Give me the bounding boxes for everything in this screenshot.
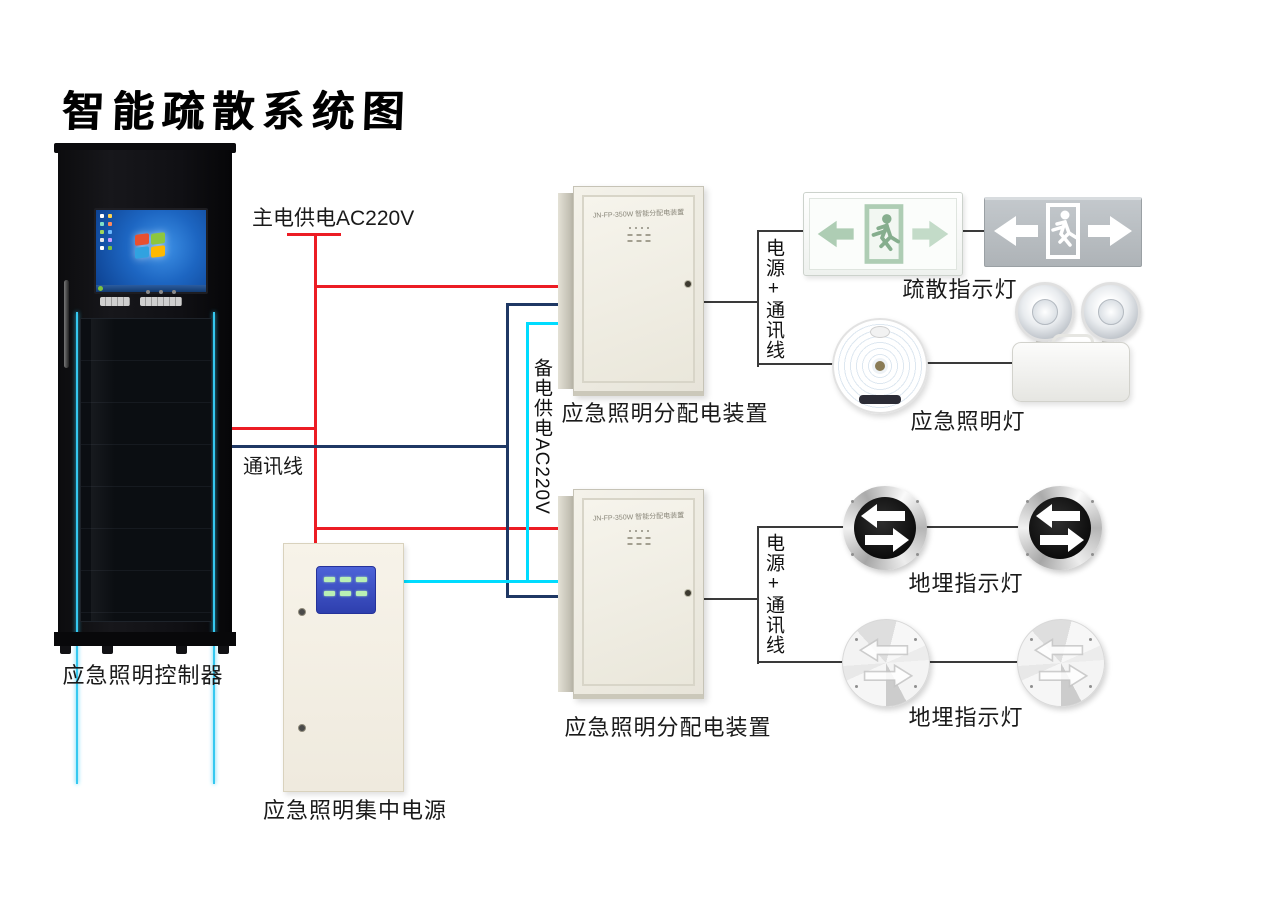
- device-wire: [920, 362, 1014, 364]
- device-wire: [926, 661, 1020, 663]
- device-wire: [757, 526, 847, 528]
- power-comm-label-1: 电源+通讯线: [763, 238, 783, 364]
- power-box-display-panel: [316, 566, 376, 614]
- box-lock-icon: [685, 281, 691, 287]
- ground-lamp-steel: [842, 619, 930, 707]
- lamp-sensor: [870, 326, 890, 338]
- ground-lamp-steel: [1017, 619, 1105, 707]
- exit-sign-lit: [803, 192, 963, 276]
- cabinet-button-panel-right: [140, 297, 182, 306]
- box-front-face: JN-FP-350W 智能分配电装置: [573, 186, 704, 396]
- cabinet-foot: [176, 646, 187, 654]
- main-power-wire: [314, 285, 574, 288]
- cabinet-button-panel-left: [100, 297, 130, 306]
- double-arrow-icon: [1031, 633, 1091, 693]
- central-power-label: 应急照明集中电源: [263, 793, 447, 825]
- page-title: 智能疏散系统图: [61, 78, 413, 139]
- main-power-label: 主电供电AC220V: [252, 202, 414, 232]
- windows-logo-icon: [135, 233, 167, 259]
- device-wire: [757, 661, 845, 663]
- twin-head-emergency-lamp: [1012, 342, 1130, 402]
- box-front-face: JN-FP-350W 智能分配电装置: [573, 489, 704, 699]
- device-wire: [925, 526, 1020, 528]
- right-arrow-icon: [912, 221, 948, 247]
- start-orb-icon: [98, 286, 103, 291]
- box-lock-icon: [685, 590, 691, 596]
- power-box-lock-icon: [298, 608, 306, 616]
- device-wire: [757, 230, 759, 367]
- device-wire: [757, 230, 807, 232]
- twin-lamp-head: [1015, 282, 1075, 342]
- ground-lamp-face: [854, 497, 916, 559]
- double-arrow-icon: [857, 500, 913, 556]
- cabinet-indicator-buttons: [146, 290, 176, 294]
- device-wire: [757, 526, 759, 664]
- ground-lamp-label-2: 地埋指示灯: [908, 700, 1023, 732]
- cabinet-foot: [60, 646, 71, 654]
- diagram-canvas: 智能疏散系统图 主电供电AC220V 通讯线 备电供电AC220V 电源+通讯线…: [0, 0, 1264, 901]
- cabinet-base: [54, 632, 236, 646]
- twin-lamp-head: [1081, 282, 1141, 342]
- box-model-text: JN-FP-350W 智能分配电装置: [584, 510, 693, 524]
- cabinet-glass-door: [80, 318, 212, 622]
- comm-wire: [230, 445, 508, 448]
- lamp-logo-band: [859, 395, 901, 404]
- left-arrow-icon: [818, 221, 854, 247]
- running-man-icon: [1053, 211, 1077, 246]
- device-wire: [700, 301, 758, 303]
- backup-power-wire: [526, 322, 529, 583]
- box-door: JN-FP-350W 智能分配电装置: [582, 195, 695, 383]
- distribution-box-2: JN-FP-350W 智能分配电装置: [558, 489, 702, 699]
- cabinet-door-handle: [64, 280, 69, 368]
- exit-sign-graphic: [986, 200, 1140, 262]
- evac-sign-label: 疏散指示灯: [902, 272, 1017, 304]
- cabinet-screen: [94, 208, 208, 294]
- double-arrow-icon: [1032, 500, 1088, 556]
- cabinet-foot: [218, 646, 229, 654]
- cabinet-stripe-left: [76, 312, 78, 784]
- cabinet-foot: [102, 646, 113, 654]
- backup-power-label: 备电供电AC220V: [531, 358, 551, 538]
- box-side-face: [558, 496, 574, 692]
- box-model-text: JN-FP-350W 智能分配电装置: [584, 207, 693, 221]
- power-comm-label-2: 电源+通讯线: [763, 533, 783, 659]
- central-power-box: [283, 543, 404, 792]
- comm-label: 通讯线: [243, 450, 303, 479]
- cabinet-stripe-right: [213, 312, 215, 784]
- power-box-lock-icon: [298, 724, 306, 732]
- ground-lamp-face: [1029, 497, 1091, 559]
- distribution-box-1: JN-FP-350W 智能分配电装置: [558, 186, 702, 396]
- ceiling-emergency-lamp: [832, 318, 928, 414]
- ground-lamp-label-1: 地埋指示灯: [908, 566, 1023, 598]
- double-arrow-icon: [856, 633, 916, 693]
- main-power-wire: [314, 233, 317, 544]
- lamp-lens: [1098, 299, 1124, 325]
- left-arrow-icon: [994, 216, 1038, 246]
- right-arrow-icon: [1088, 216, 1132, 246]
- distribution-box-2-label: 应急照明分配电装置: [564, 710, 771, 742]
- lamp-core: [875, 361, 885, 371]
- device-wire: [702, 598, 758, 600]
- controller-label: 应急照明控制器: [62, 658, 223, 690]
- ground-lamp-black: [1018, 486, 1102, 570]
- box-side-face: [558, 193, 574, 389]
- main-power-wire: [230, 427, 316, 430]
- emergency-lamp-label: 应急照明灯: [910, 404, 1025, 436]
- exit-sign-unlit: [984, 197, 1142, 267]
- exit-sign-face: [809, 198, 957, 270]
- lamp-lens: [1032, 299, 1058, 325]
- distribution-box-1-label: 应急照明分配电装置: [561, 396, 768, 428]
- desktop-icons: [100, 214, 112, 250]
- exit-sign-graphic: [810, 199, 956, 269]
- backup-power-wire: [400, 580, 574, 583]
- box-door: JN-FP-350W 智能分配电装置: [582, 498, 695, 686]
- comm-wire: [506, 303, 509, 598]
- ground-lamp-black: [843, 486, 927, 570]
